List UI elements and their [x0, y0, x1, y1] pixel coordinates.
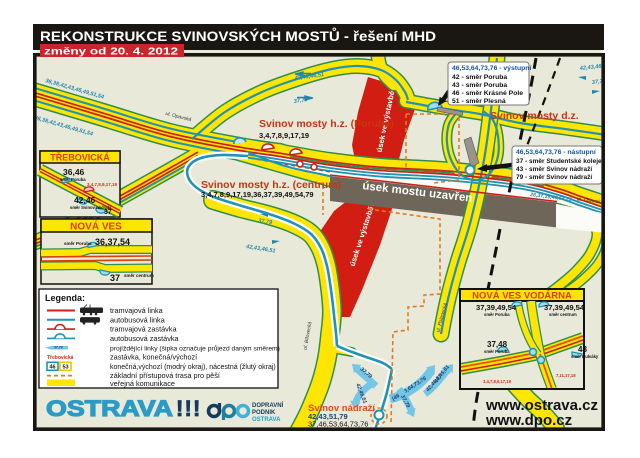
svg-text:autobusová zastávka: autobusová zastávka: [110, 334, 179, 343]
svg-text:3,4,7,8,9,17,19,36,37,39,49,54: 3,4,7,8,9,17,19,36,37,39,49,54,79: [201, 190, 314, 199]
svg-text:tramvajová linka: tramvajová linka: [110, 306, 164, 315]
svg-text:3,4,7,8,9,17,19: 3,4,7,8,9,17,19: [87, 182, 118, 187]
svg-text:změny od 20. 4. 2012: změny od 20. 4. 2012: [44, 45, 178, 57]
svg-text:veřejná komunikace: veřejná komunikace: [110, 379, 175, 388]
svg-text:směr centrum: směr centrum: [549, 312, 577, 317]
svg-text:NOVÁ VES: NOVÁ VES: [70, 220, 122, 233]
svg-text:51 - směr Plesná: 51 - směr Plesná: [452, 98, 506, 105]
svg-text:zastávka, konečná/výchozí: zastávka, konečná/výchozí: [110, 353, 197, 362]
svg-text:DOPRAVNÍ: DOPRAVNÍ: [252, 401, 284, 409]
svg-text:Legenda:: Legenda:: [45, 293, 85, 303]
svg-text:37,46,53,64,73,76: 37,46,53,64,73,76: [308, 420, 368, 429]
svg-text:směr Poruba: směr Poruba: [64, 241, 92, 246]
svg-text:36,37,54: 36,37,54: [95, 237, 130, 247]
svg-text:konečná,výchozí (modrý okraj),: konečná,výchozí (modrý okraj), nácestná …: [110, 364, 276, 371]
svg-text:46,53,64,73,76 - výstupní: 46,53,64,73,76 - výstupní: [452, 65, 532, 72]
svg-text:REKONSTRUKCE SVINOVSKÝCH MOSTŮ: REKONSTRUKCE SVINOVSKÝCH MOSTŮ - řešení …: [40, 26, 436, 44]
svg-text:NOVÁ VES VODÁRNA: NOVÁ VES VODÁRNA: [472, 291, 572, 302]
svg-text:37,39,49,54: 37,39,49,54: [476, 303, 517, 312]
svg-text:autobusová linka: autobusová linka: [110, 315, 166, 324]
svg-text:3,4,7,8,9,17,19: 3,4,7,8,9,17,19: [483, 379, 512, 384]
svg-text:46 - směr Krásné Pole: 46 - směr Krásné Pole: [452, 90, 523, 97]
svg-text:37 - směr Studentské koleje: 37 - směr Studentské koleje: [516, 158, 602, 165]
svg-text:37: 37: [104, 209, 112, 216]
svg-text:směr Poruba: směr Poruba: [484, 349, 510, 354]
svg-text:3,4,7,8,9,17,19: 3,4,7,8,9,17,19: [259, 131, 309, 140]
svg-text:79 - směr Svinov nádraží: 79 - směr Svinov nádraží: [516, 174, 592, 181]
svg-text:43 - směr Svinov nádraží: 43 - směr Svinov nádraží: [516, 166, 592, 173]
svg-text:TŘEBOVICKÁ: TŘEBOVICKÁ: [50, 152, 110, 163]
svg-text:37,79: 37,79: [54, 346, 63, 350]
svg-text:42,46: 42,46: [74, 195, 96, 205]
svg-text:43 - směr Poruba: 43 - směr Poruba: [452, 82, 507, 89]
svg-text:48: 48: [578, 345, 587, 354]
svg-text:projíždějící linky (šipka ozna: projíždějící linky (šipka označuje průje…: [110, 344, 280, 352]
svg-text:42 - směr Poruba: 42 - směr Poruba: [452, 74, 507, 81]
svg-text:36,46: 36,46: [63, 167, 85, 177]
svg-text:Svinov mosty h.z. (Poruba): Svinov mosty h.z. (Poruba): [259, 118, 394, 130]
svg-text:www.dpo.cz: www.dpo.cz: [485, 412, 572, 429]
svg-text:PODNIK: PODNIK: [252, 410, 276, 416]
svg-text:směr centrum: směr centrum: [124, 273, 154, 278]
svg-text:Třebovická: Třebovická: [47, 355, 74, 361]
svg-text:53: 53: [63, 365, 69, 371]
svg-text:Svinov mosty d.z.: Svinov mosty d.z.: [490, 110, 579, 122]
svg-text:37: 37: [110, 273, 120, 283]
svg-text:směr Poruba: směr Poruba: [484, 312, 510, 317]
svg-text:směr Poruba: směr Poruba: [60, 177, 86, 182]
svg-text:OSTRAVA: OSTRAVA: [252, 417, 281, 423]
svg-text:46: 46: [50, 365, 56, 371]
svg-text:směr Hulváky: směr Hulváky: [571, 354, 599, 359]
svg-text:37,39,49,54: 37,39,49,54: [544, 303, 585, 312]
svg-text:37,48: 37,48: [487, 340, 508, 349]
svg-text:OSTRAVA: OSTRAVA: [46, 396, 173, 421]
svg-text:!!!: !!!: [176, 396, 202, 421]
svg-text:tramvajová zastávka: tramvajová zastávka: [110, 325, 177, 334]
svg-text:46,53,64,73,76 - nástupní: 46,53,64,73,76 - nástupní: [516, 149, 597, 156]
svg-text:7,11,17,18: 7,11,17,18: [556, 373, 576, 378]
